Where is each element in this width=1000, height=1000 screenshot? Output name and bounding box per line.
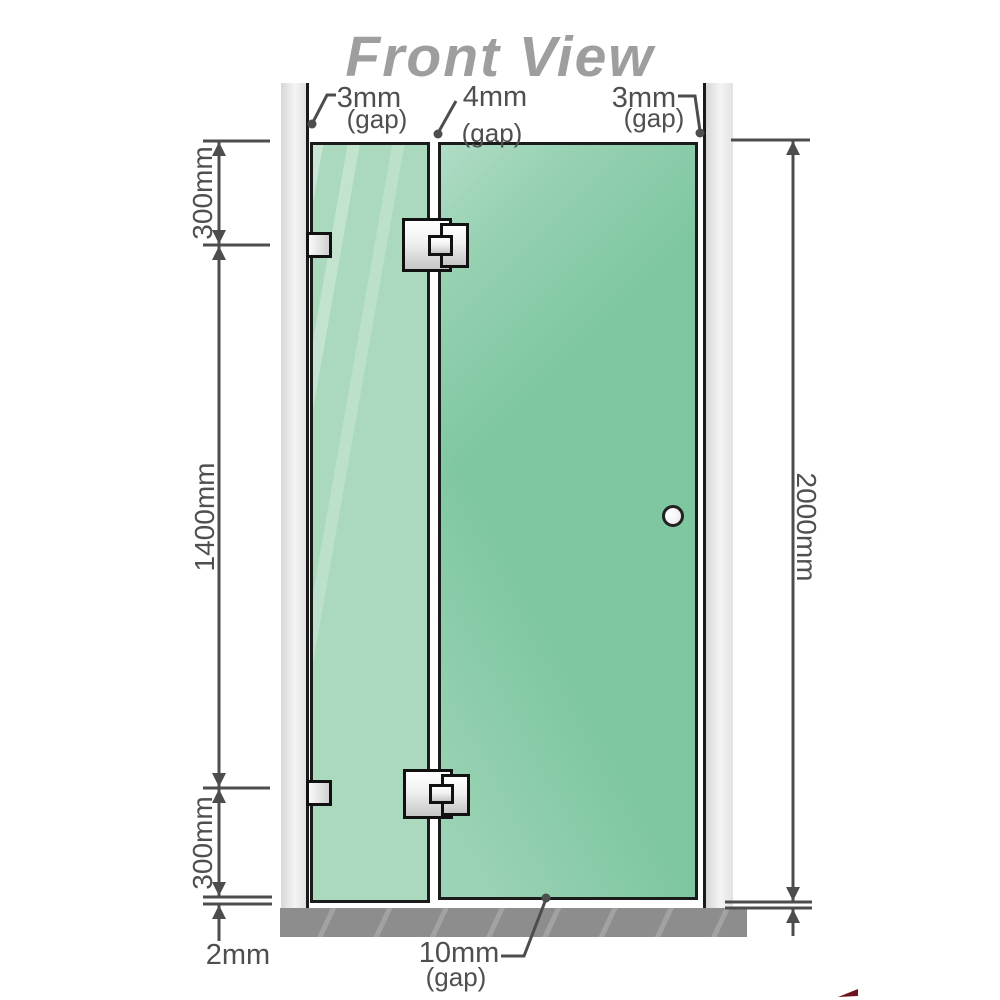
wall-bracket-bottom-icon <box>306 780 332 806</box>
left-wall-channel <box>281 83 309 908</box>
right-dimension-line <box>725 140 812 936</box>
diagram-title: Front View <box>345 24 654 90</box>
height-top-section-label: 300mm <box>187 146 218 239</box>
floor-clearance-label: 2mm <box>206 939 270 971</box>
hinged-glass-door-panel <box>438 142 698 900</box>
floor-base <box>280 908 747 937</box>
total-height-label: 2000mm <box>791 473 822 582</box>
wall-bracket-top-icon <box>306 232 332 258</box>
height-bottom-section-label: 300mm <box>187 796 218 889</box>
door-knob-icon <box>662 505 684 527</box>
right-wall-channel <box>703 83 733 908</box>
hinge-center-tab <box>428 235 453 256</box>
shower-screen-front-view-diagram: Front View <box>0 0 1000 1000</box>
hinge-center-tab <box>429 784 454 804</box>
left-dimension-ticks <box>203 141 272 904</box>
gap-top-left-caption: (gap) <box>347 104 408 134</box>
corner-mark <box>838 989 858 997</box>
gap-top-right-caption: (gap) <box>624 103 685 133</box>
height-middle-section-label: 1400mm <box>189 463 220 572</box>
gap-bottom-caption: (gap) <box>426 962 487 992</box>
left-dimension-line <box>212 141 226 941</box>
gap-bottom-value: 10mm <box>419 937 500 969</box>
